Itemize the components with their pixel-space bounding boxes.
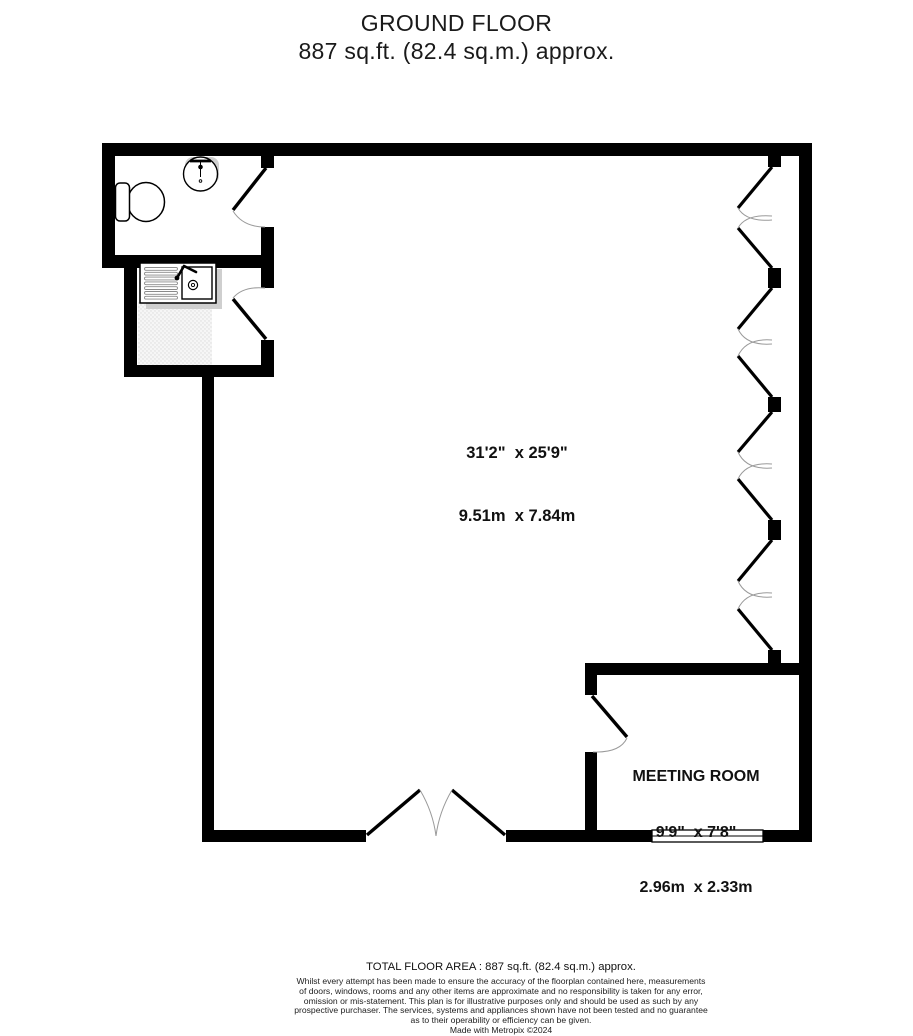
main-room-imperial: 31'2" x 25'9" xyxy=(459,443,576,464)
plan-title: GROUND FLOOR 887 sq.ft. (82.4 sq.m.) app… xyxy=(0,9,913,65)
plan-title-line2: 887 sq.ft. (82.4 sq.m.) approx. xyxy=(0,37,913,65)
drainer-lines xyxy=(145,268,178,300)
kitchen-worktop xyxy=(138,302,212,365)
meeting-room-name: MEETING ROOM xyxy=(632,768,759,787)
bifold-doors xyxy=(738,167,772,650)
disclaimer-line: as to their operability or efficiency ca… xyxy=(171,1016,831,1026)
meeting-room-label: MEETING ROOM 9'9" x 7'8" 2.96m x 2.33m xyxy=(632,731,759,916)
toilet xyxy=(116,183,165,222)
plan-title-line1: GROUND FLOOR xyxy=(0,9,913,37)
entrance-double-door-swing xyxy=(367,790,505,836)
meeting-room-metric: 2.96m x 2.33m xyxy=(632,879,759,898)
footer: TOTAL FLOOR AREA : 887 sq.ft. (82.4 sq.m… xyxy=(171,961,831,1036)
metropix-credit: Made with Metropix ©2024 xyxy=(171,1026,831,1036)
bathroom-door-swing xyxy=(233,168,266,227)
floorplan xyxy=(0,0,913,1024)
total-floor-area: TOTAL FLOOR AREA : 887 sq.ft. (82.4 sq.m… xyxy=(171,961,831,974)
kitchen-door-swing xyxy=(233,288,266,339)
wash-basin xyxy=(184,157,220,191)
meeting-room-door-swing xyxy=(592,696,627,752)
meeting-room-imperial: 9'9" x 7'8" xyxy=(632,824,759,843)
kitchen-sink xyxy=(140,263,222,309)
main-room-dimensions: 31'2" x 25'9" 9.51m x 7.84m xyxy=(459,401,576,548)
main-room-metric: 9.51m x 7.84m xyxy=(459,506,576,527)
